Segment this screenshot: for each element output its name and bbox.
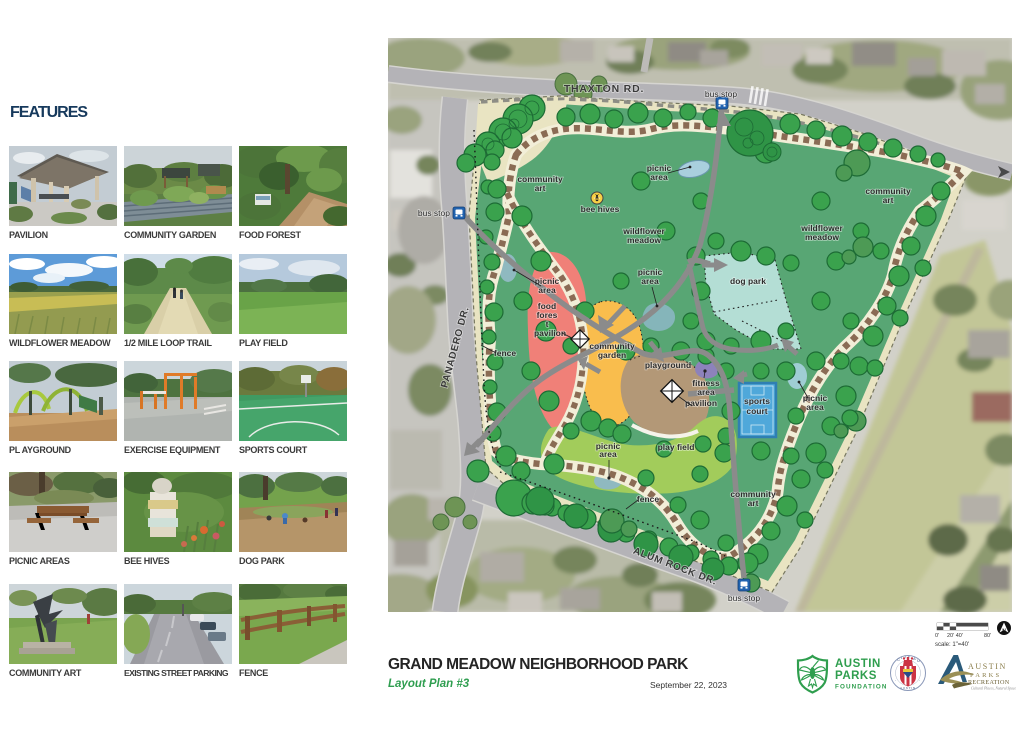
svg-text:bee hives: bee hives: [581, 204, 620, 214]
svg-text:garden: garden: [598, 350, 626, 360]
svg-text:fence: fence: [494, 348, 516, 358]
svg-text:N: N: [1002, 629, 1006, 635]
svg-text:area: area: [641, 276, 659, 286]
svg-text:fence: fence: [637, 494, 659, 504]
svg-text:U: U: [917, 658, 920, 663]
svg-text:I: I: [901, 655, 902, 660]
svg-text:meadow: meadow: [627, 235, 661, 245]
svg-text:AUSTIN: AUSTIN: [835, 658, 881, 670]
svg-text:area: area: [650, 172, 668, 182]
svg-text:art: art: [883, 195, 894, 205]
svg-text:area: area: [697, 387, 715, 397]
svg-text:bus stop: bus stop: [728, 593, 760, 603]
svg-text:court: court: [746, 406, 767, 416]
svg-text:PARKS: PARKS: [970, 672, 1001, 679]
svg-text:.: .: [919, 677, 920, 682]
svg-text:bus stop: bus stop: [418, 208, 450, 218]
svg-text:sports: sports: [744, 396, 770, 406]
svg-text:0': 0': [935, 633, 939, 639]
svg-text:scale: 1"=40': scale: 1"=40': [935, 642, 969, 648]
svg-text:A: A: [913, 656, 916, 661]
svg-text:Cultural Places, Natural Space: Cultural Places, Natural Spaces: [971, 687, 1016, 692]
svg-text:THAXTON RD.: THAXTON RD.: [564, 83, 644, 95]
svg-text:meadow: meadow: [805, 232, 839, 242]
svg-text:playground: playground: [645, 360, 691, 370]
svg-text:play field: play field: [658, 442, 695, 452]
svg-text:A U S T I N: A U S T I N: [900, 686, 915, 690]
svg-text:area: area: [806, 402, 824, 412]
svg-text:art: art: [535, 183, 546, 193]
svg-text:FOUNDATION: FOUNDATION: [835, 684, 888, 691]
svg-text:area: area: [538, 285, 556, 295]
svg-text:PARKS: PARKS: [835, 670, 877, 682]
svg-text:art: art: [748, 498, 759, 508]
svg-text:AUSTIN: AUSTIN: [968, 662, 1007, 671]
svg-text:RECREATION: RECREATION: [968, 679, 1010, 686]
svg-text:pavilion: pavilion: [534, 328, 566, 338]
svg-text:pavilion: pavilion: [685, 398, 717, 408]
svg-text:.: .: [895, 677, 896, 682]
svg-text:C: C: [897, 657, 900, 662]
svg-text:dog park: dog park: [730, 276, 766, 286]
svg-text:area: area: [599, 449, 617, 459]
svg-text:80': 80': [984, 633, 991, 639]
svg-text:bus stop: bus stop: [705, 89, 737, 99]
svg-text:20' 40': 20' 40': [947, 633, 963, 639]
